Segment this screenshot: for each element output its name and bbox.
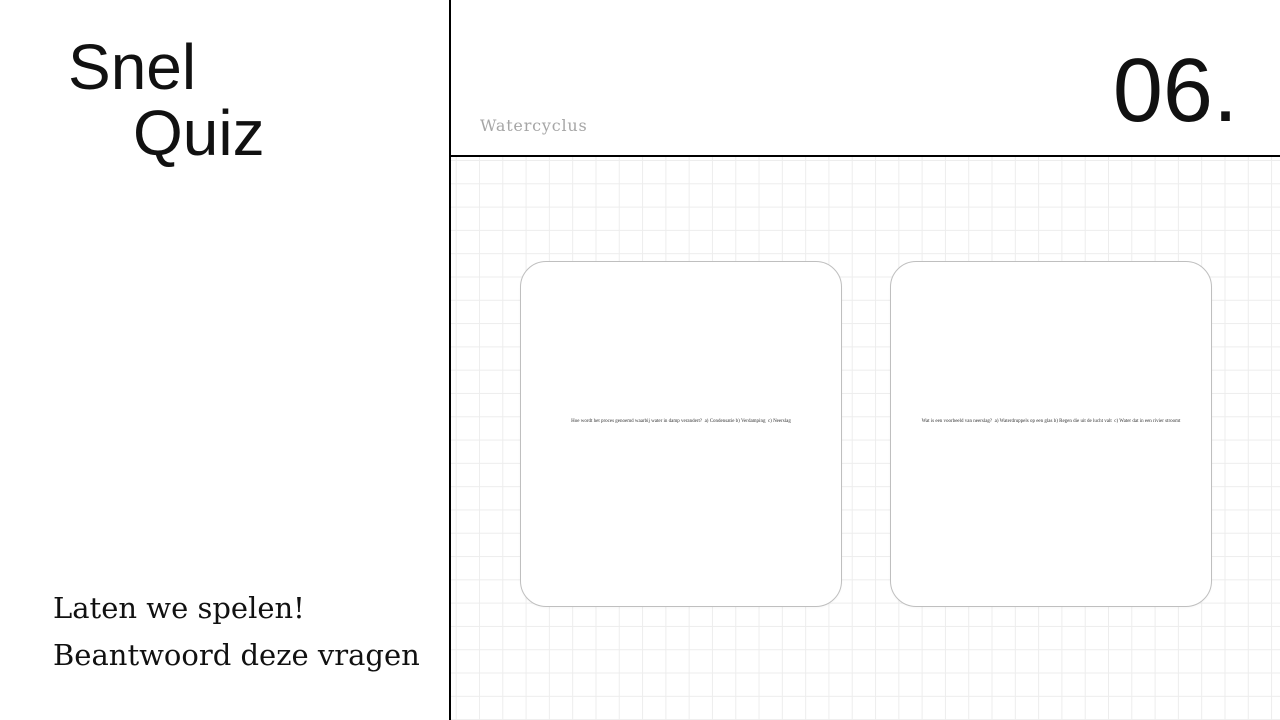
slide-title-line1: Snel (68, 31, 196, 103)
question-card-2[interactable]: Wat is een voorbeeld van neerslag? a) Wa… (890, 261, 1212, 607)
topic-label: Watercyclus (480, 116, 588, 135)
left-panel: SnelQuiz Laten we spelen! Beantwoord dez… (0, 0, 449, 720)
question-card-2-text: Wat is een voorbeeld van neerslag? a) Wa… (891, 418, 1211, 425)
cta-line1: Laten we spelen! (53, 585, 420, 632)
slide-title: SnelQuiz (68, 34, 265, 166)
cta-line2: Beantwoord deze vragen (53, 632, 420, 679)
question-card-1-text: Hoe wordt het proces genoemd waarbij wat… (521, 418, 841, 425)
call-to-action: Laten we spelen! Beantwoord deze vragen (53, 585, 420, 679)
question-card-1[interactable]: Hoe wordt het proces genoemd waarbij wat… (520, 261, 842, 607)
slide-title-line2: Quiz (133, 100, 265, 166)
slide-number: 06. (1113, 44, 1238, 138)
vertical-divider (449, 0, 451, 720)
horizontal-divider (449, 155, 1280, 157)
